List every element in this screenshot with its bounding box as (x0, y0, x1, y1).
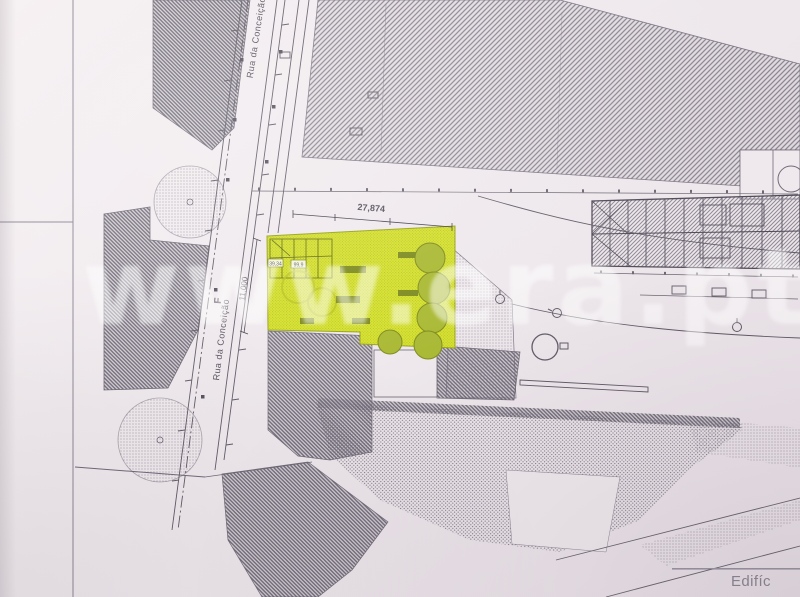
site-plan-drawing: 39,34 99,9 27,874 11,000 F Rua da Concei… (0, 0, 800, 597)
parcel-area-label-2: 99,9 (294, 263, 304, 269)
courtyard-cutout (740, 150, 800, 199)
parcel-front-dimension: 27,874 (357, 202, 385, 214)
survey-points (496, 290, 742, 360)
building-with-rooms (592, 195, 800, 269)
street-width-dimension: 11,000 (237, 276, 249, 301)
title-block-rule (672, 568, 800, 569)
plaza-wall (520, 380, 648, 392)
site-plan-photo: 39,34 99,9 27,874 11,000 F Rua da Concei… (0, 0, 800, 597)
tree-canopy (118, 398, 202, 482)
title-block-caption: Edifíc (731, 573, 771, 590)
building-block-top (302, 0, 800, 186)
parcel-area-label-1: 39,34 (269, 262, 282, 268)
